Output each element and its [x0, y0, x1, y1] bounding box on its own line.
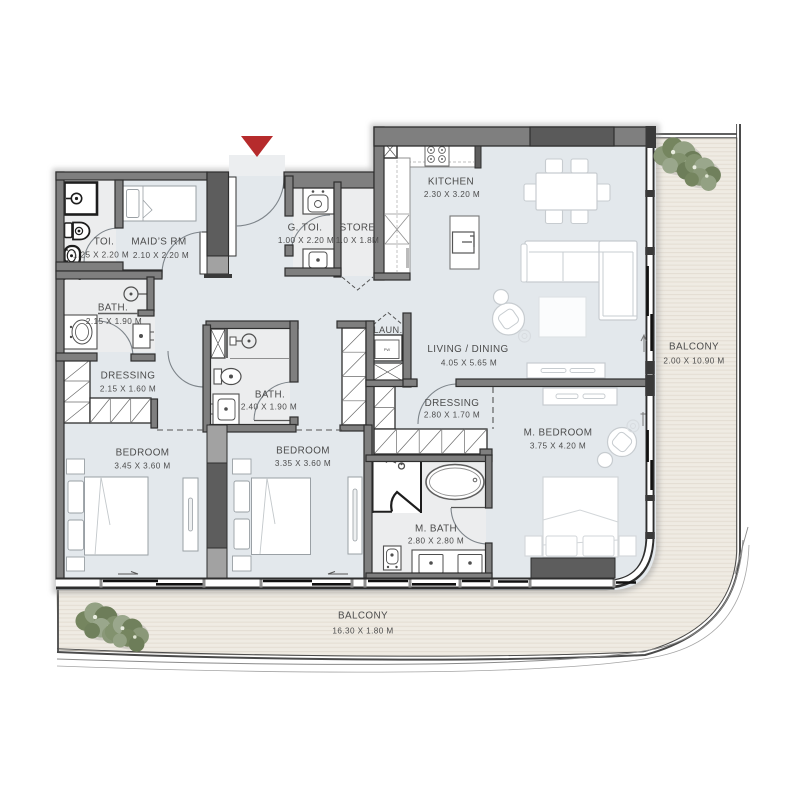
svg-text:STORE: STORE: [340, 223, 376, 234]
svg-text:1.25 X 2.20 M: 1.25 X 2.20 M: [73, 251, 129, 260]
svg-text:2.00 X 10.90 M: 2.00 X 10.90 M: [663, 357, 724, 366]
svg-text:G. TOI.: G. TOI.: [288, 223, 323, 234]
svg-text:KITCHEN: KITCHEN: [428, 177, 474, 188]
svg-text:2.15 X 1.60 M: 2.15 X 1.60 M: [100, 385, 156, 394]
svg-text:16.30 X 1.80 M: 16.30 X 1.80 M: [332, 627, 393, 636]
svg-text:2.40 X 1.90 M: 2.40 X 1.90 M: [241, 403, 297, 412]
svg-text:BATH.: BATH.: [255, 390, 285, 401]
svg-text:1.00 X 2.20 M: 1.00 X 2.20 M: [278, 236, 334, 245]
svg-text:2.10 X 2.20 M: 2.10 X 2.20 M: [133, 251, 189, 260]
svg-text:3.45 X 3.60 M: 3.45 X 3.60 M: [114, 462, 170, 471]
svg-text:BALCONY: BALCONY: [669, 342, 719, 353]
svg-text:DRESSING: DRESSING: [101, 371, 156, 382]
svg-text:TOI.: TOI.: [94, 237, 115, 248]
svg-text:2.30 X 3.20 M: 2.30 X 3.20 M: [424, 190, 480, 199]
svg-text:3.35 X 3.60 M: 3.35 X 3.60 M: [275, 459, 331, 468]
svg-text:MAID’S RM: MAID’S RM: [131, 237, 186, 248]
svg-text:BEDROOM: BEDROOM: [276, 446, 330, 457]
svg-text:LIVING / DINING: LIVING / DINING: [427, 344, 508, 355]
svg-text:PW: PW: [384, 347, 391, 352]
svg-text:BEDROOM: BEDROOM: [116, 448, 170, 459]
svg-text:DRESSING: DRESSING: [425, 398, 480, 409]
svg-text:M. BEDROOM: M. BEDROOM: [524, 428, 593, 439]
svg-text:2.15 X 1.90 M: 2.15 X 1.90 M: [86, 317, 142, 326]
svg-text:1.0 X 1.8M: 1.0 X 1.8M: [336, 236, 380, 245]
svg-text:BATH.: BATH.: [98, 303, 128, 314]
svg-text:LAUN.: LAUN.: [373, 325, 402, 335]
svg-text:2.80 X 1.70 M: 2.80 X 1.70 M: [424, 411, 480, 420]
svg-text:4.05 X 5.65 M: 4.05 X 5.65 M: [441, 359, 497, 368]
svg-text:BALCONY: BALCONY: [338, 611, 388, 622]
svg-text:3.75 X 4.20 M: 3.75 X 4.20 M: [530, 442, 586, 451]
svg-text:2.80 X 2.80 M: 2.80 X 2.80 M: [408, 537, 464, 546]
svg-text:M. BATH: M. BATH: [415, 524, 457, 535]
